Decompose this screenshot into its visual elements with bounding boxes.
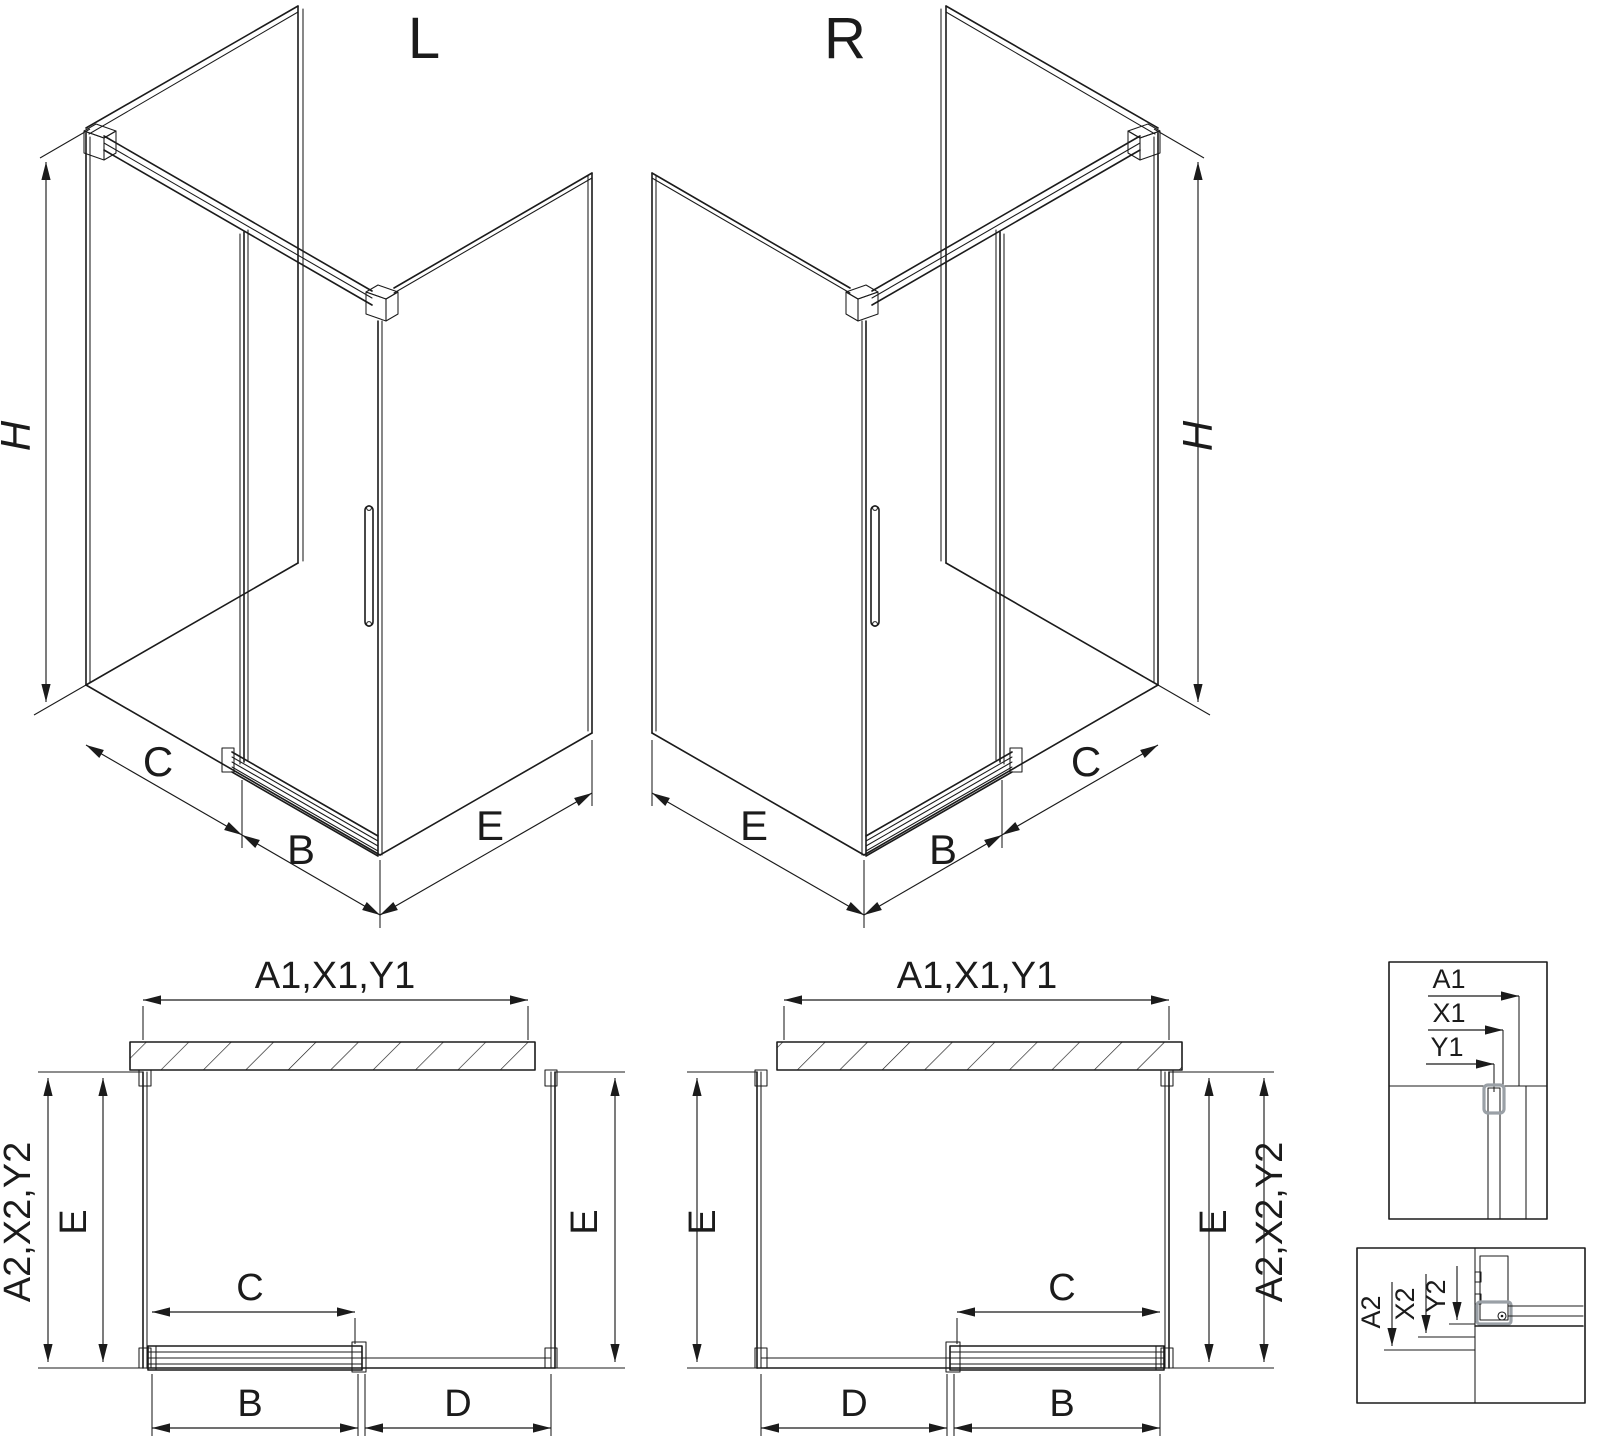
- dim-label-e-right: E: [1193, 1209, 1235, 1234]
- iso-view-left: L H C B E: [0, 6, 592, 928]
- dim-label-c: C: [143, 738, 173, 785]
- dim-label-e-left: E: [53, 1209, 95, 1234]
- dim-label-a2: A2,X2,Y2: [1249, 1142, 1291, 1303]
- door-profile-section: [1475, 1256, 1583, 1326]
- detail-wall-section: A1 X1 Y1: [1389, 962, 1547, 1219]
- plan-view-right: A1,X1,Y1 A2,X2,Y2 E E C D B: [682, 955, 1291, 1436]
- dim-label-c: C: [236, 1267, 263, 1309]
- wall-hatch: [130, 1042, 535, 1070]
- dim-label-b: B: [237, 1383, 262, 1425]
- detail-label-x2: X2: [1390, 1287, 1420, 1320]
- detail-label-y1: Y1: [1430, 1032, 1463, 1062]
- dim-label-e-left: E: [682, 1209, 724, 1234]
- detail-floor-section: A2 X2 Y2: [1356, 1248, 1585, 1403]
- iso-right-geometry: [652, 6, 1210, 928]
- iso-left-geometry: [34, 6, 592, 928]
- detail-label-y2: Y2: [1421, 1279, 1451, 1312]
- iso-view-right: R H C B E: [652, 6, 1221, 928]
- dim-label-d: D: [840, 1383, 867, 1425]
- wall-hatch: [777, 1042, 1182, 1070]
- variant-label-right: R: [824, 6, 866, 71]
- dim-label-b: B: [1049, 1383, 1074, 1425]
- rail-clamp-profile: [1477, 1302, 1511, 1324]
- height-label: H: [1174, 420, 1221, 451]
- detail-label-a1: A1: [1432, 964, 1465, 994]
- dim-label-e: E: [476, 802, 504, 849]
- dim-label-c: C: [1048, 1267, 1075, 1309]
- detail-label-a2: A2: [1356, 1295, 1386, 1328]
- drawing-canvas: L H C B E R H C B E A1,X1,Y1 A2,X2,Y2 E …: [0, 0, 1600, 1438]
- dim-label-b: B: [287, 826, 315, 873]
- plan-view-left: A1,X1,Y1 A2,X2,Y2 E E C B D: [0, 955, 625, 1436]
- dim-label-a1: A1,X1,Y1: [255, 955, 416, 997]
- dim-label-d: D: [444, 1383, 471, 1425]
- height-label: H: [0, 420, 39, 451]
- detail-label-x1: X1: [1432, 998, 1465, 1028]
- dim-label-a2: A2,X2,Y2: [0, 1142, 39, 1303]
- dim-label-e: E: [740, 802, 768, 849]
- dim-label-e-right: E: [564, 1209, 606, 1234]
- glass-section: [1488, 1088, 1500, 1219]
- technical-drawing-page: L H C B E R H C B E A1,X1,Y1 A2,X2,Y2 E …: [0, 0, 1600, 1438]
- dim-label-a1: A1,X1,Y1: [897, 955, 1058, 997]
- dim-label-b: B: [929, 826, 957, 873]
- variant-label-left: L: [408, 6, 440, 71]
- dim-label-c: C: [1071, 738, 1101, 785]
